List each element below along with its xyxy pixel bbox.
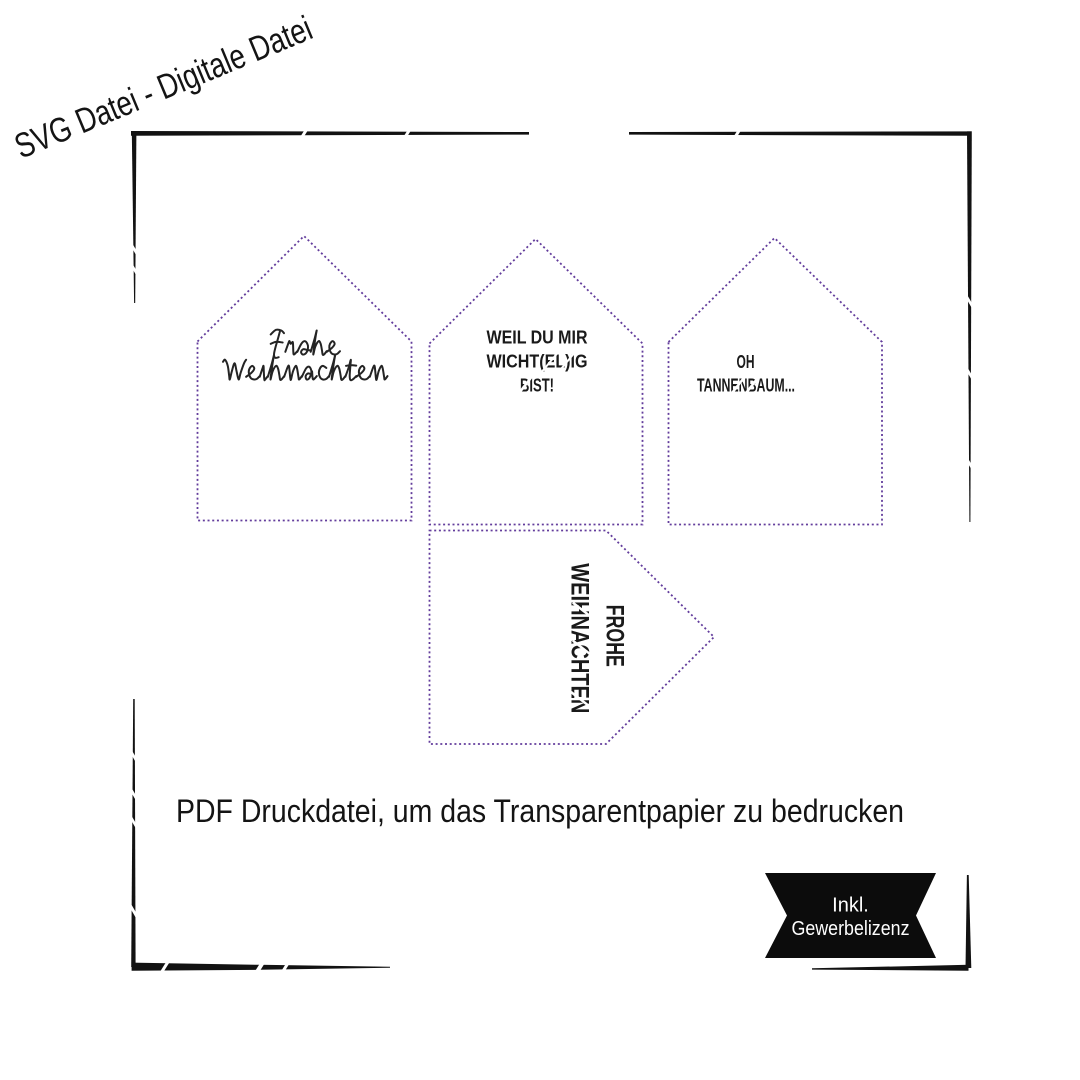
svg-text:Gewerbelizenz: Gewerbelizenz <box>792 918 910 940</box>
svg-text:Inkl.: Inkl. <box>832 895 869 917</box>
svg-text:WEIHNACHTEN: WEIHNACHTEN <box>566 563 594 713</box>
svg-text:WICHT(EL)IG: WICHT(EL)IG <box>487 351 588 372</box>
svg-text:WEIL DU MIR: WEIL DU MIR <box>487 327 588 348</box>
svg-text:PDF Druckdatei, um das Transpa: PDF Druckdatei, um das Transparentpapier… <box>176 793 904 829</box>
svg-text:FROHE: FROHE <box>601 605 629 667</box>
svg-text:OH: OH <box>737 351 755 372</box>
